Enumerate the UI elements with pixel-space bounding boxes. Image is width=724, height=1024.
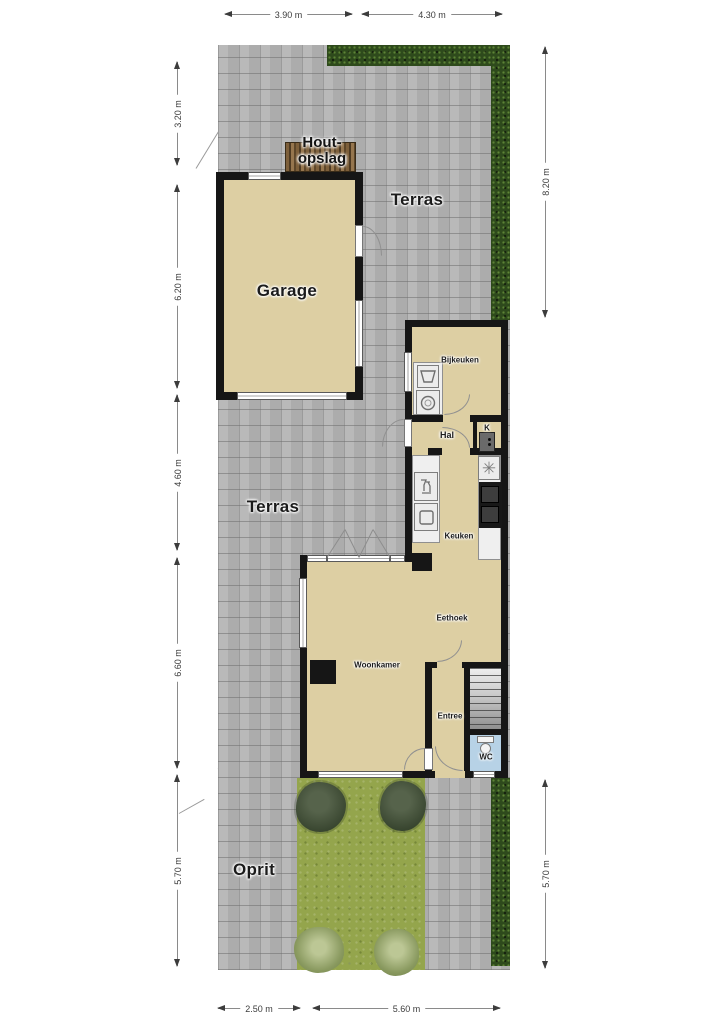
interior-wall [412, 553, 432, 571]
room-label-bijkeuken: Bijkeuken [441, 356, 479, 365]
dishwasher-icon [414, 472, 438, 501]
room-label-terras-west: Terras [247, 497, 300, 517]
arrow-down-icon [174, 543, 180, 551]
arrow-left-icon [224, 11, 232, 17]
arrow-down-icon [174, 761, 180, 769]
woonkamer-entree-door [424, 748, 433, 770]
arrow-down-icon [174, 158, 180, 166]
room-label-meterkast: K [484, 424, 490, 433]
dimension-label: 6.60 m [173, 644, 183, 682]
dimension-label: 4.60 m [173, 454, 183, 492]
dimension-label: 6.20 m [173, 268, 183, 306]
arrow-left-icon [312, 1005, 320, 1011]
hedge-east-upper [491, 45, 510, 320]
dimension-label: 3.20 m [173, 95, 183, 133]
entree-door-opening [437, 662, 462, 668]
wc-window [473, 771, 495, 778]
dimension-right-1: 8.20 m [545, 47, 546, 317]
arrow-up-icon [542, 46, 548, 54]
arrow-right-icon [345, 11, 353, 17]
arrow-down-icon [542, 310, 548, 318]
arrow-right-icon [495, 11, 503, 17]
woonkamer-window [390, 555, 405, 562]
bijkeuken-window [404, 352, 412, 392]
garage-window [355, 300, 363, 367]
dimension-label: 2.50 m [240, 1004, 278, 1014]
arrow-up-icon [174, 394, 180, 402]
room-label-terras-north: Terras [391, 190, 444, 210]
front-door-opening [435, 771, 465, 778]
meter-box-icon [479, 432, 495, 452]
dimension-left-5: 5.70 m [177, 775, 178, 966]
dimension-left-2: 6.20 m [177, 185, 178, 388]
fan-glyph: ✳ [482, 460, 496, 477]
houtopslag-line2: opslag [298, 150, 346, 167]
dimension-label: 8.20 m [541, 163, 551, 201]
garage-window [248, 172, 281, 180]
arrow-down-icon [174, 959, 180, 967]
arrow-left-icon [217, 1005, 225, 1011]
laundry-sink-icon [417, 365, 439, 388]
dimension-label: 4.30 m [413, 10, 451, 20]
boundary-marker-line [179, 799, 205, 814]
dimension-top-1: 3.90 m [225, 14, 352, 15]
keuken-door-opening [442, 448, 470, 455]
dimension-top-2: 4.30 m [362, 14, 502, 15]
interior-wall [428, 448, 442, 455]
arrow-up-icon [174, 774, 180, 782]
arrow-right-icon [293, 1005, 301, 1011]
arrow-down-icon [542, 961, 548, 969]
fireplace [310, 660, 336, 684]
stove-icon [479, 482, 502, 528]
extractor-fan-icon: ✳ [478, 456, 500, 480]
dimension-left-3: 4.60 m [177, 395, 178, 550]
dimension-label: 5.60 m [388, 1004, 426, 1014]
dimension-label: 3.90 m [270, 10, 308, 20]
dimension-bottom-2: 5.60 m [313, 1008, 500, 1009]
arrow-left-icon [361, 11, 369, 17]
room-label-wc: WC [479, 753, 492, 762]
room-label-woonkamer: Woonkamer [354, 661, 400, 670]
houtopslag-line1: Hout- [302, 134, 341, 151]
arrow-up-icon [174, 61, 180, 69]
arrow-up-icon [542, 779, 548, 787]
exterior-wall [405, 320, 508, 327]
hedge-east-lower [491, 778, 510, 966]
dimension-bottom-1: 2.50 m [218, 1008, 300, 1009]
dimension-left-4: 6.60 m [177, 558, 178, 768]
arrow-up-icon [174, 557, 180, 565]
garage-door [237, 392, 347, 400]
garage-wall [216, 172, 224, 400]
room-label-keuken: Keuken [445, 532, 474, 541]
sink-icon [414, 503, 438, 531]
dimension-right-2: 5.70 m [545, 780, 546, 968]
exterior-wall [501, 320, 508, 778]
floorplan-canvas: 3.90 m 4.30 m 2.50 m 5.60 m 3.20 m 6.20 … [0, 0, 724, 1024]
washing-machine-icon [416, 390, 440, 415]
room-label-hal: Hal [440, 430, 454, 440]
dimension-label: 5.70 m [541, 855, 551, 893]
shrub-icon [374, 929, 419, 976]
room-label-eethoek: Eethoek [436, 614, 467, 623]
dimension-left-1: 3.20 m [177, 62, 178, 165]
shrub-icon [294, 927, 344, 973]
woonkamer-window [318, 771, 403, 778]
hal-exterior-door [404, 419, 412, 447]
arrow-right-icon [493, 1005, 501, 1011]
room-label-entree: Entree [438, 712, 463, 721]
arrow-up-icon [174, 184, 180, 192]
bijkeuken-door-opening [443, 415, 470, 422]
woonkamer-window [307, 555, 327, 562]
arrow-down-icon [174, 381, 180, 389]
room-label-garage: Garage [257, 281, 317, 301]
garage-wall [216, 172, 363, 180]
hedge-north [327, 45, 510, 66]
dimension-label: 5.70 m [173, 852, 183, 890]
garage-side-door [355, 225, 363, 257]
room-label-houtopslag: Hout- opslag [298, 135, 346, 167]
room-label-oprit: Oprit [233, 860, 275, 880]
woonkamer-window [299, 578, 307, 648]
interior-wall [473, 422, 477, 448]
staircase [470, 668, 501, 729]
